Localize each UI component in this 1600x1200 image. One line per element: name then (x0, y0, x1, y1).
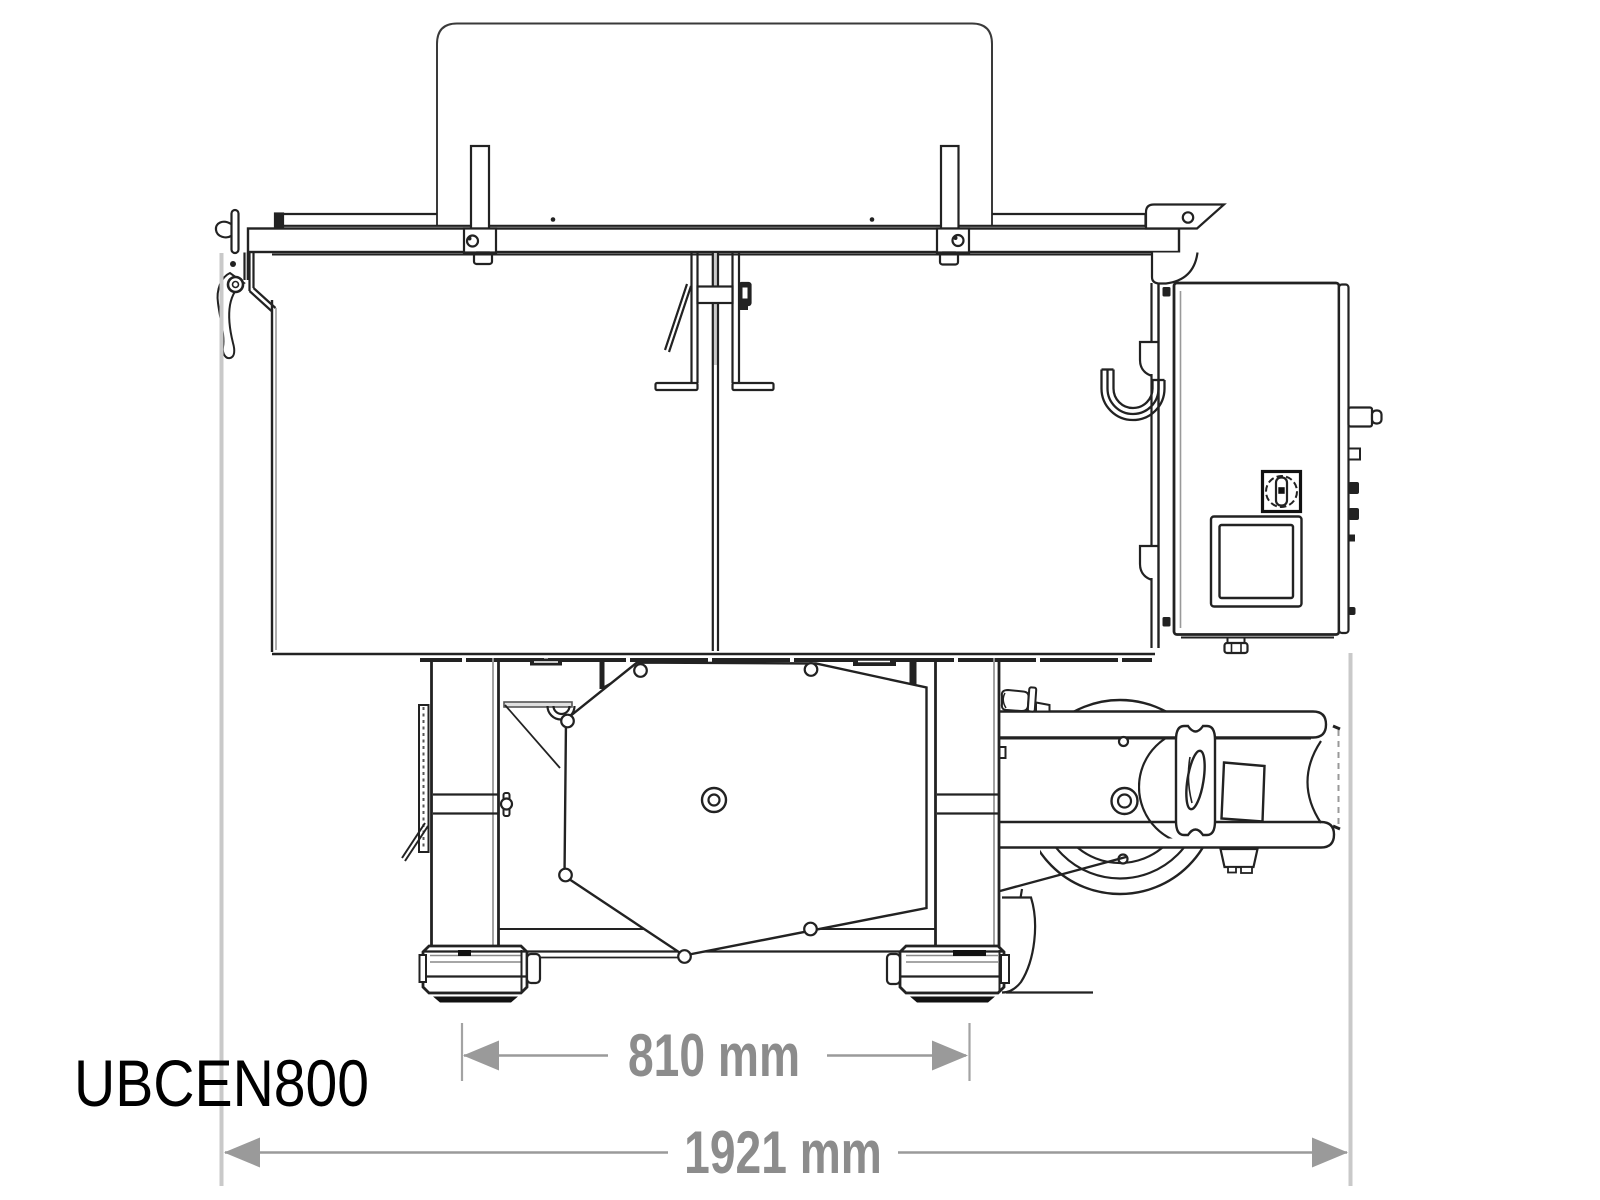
svg-text:UBCEN800: UBCEN800 (74, 1047, 369, 1121)
svg-text:810 mm: 810 mm (628, 1023, 800, 1089)
svg-text:1921 mm: 1921 mm (684, 1120, 882, 1186)
